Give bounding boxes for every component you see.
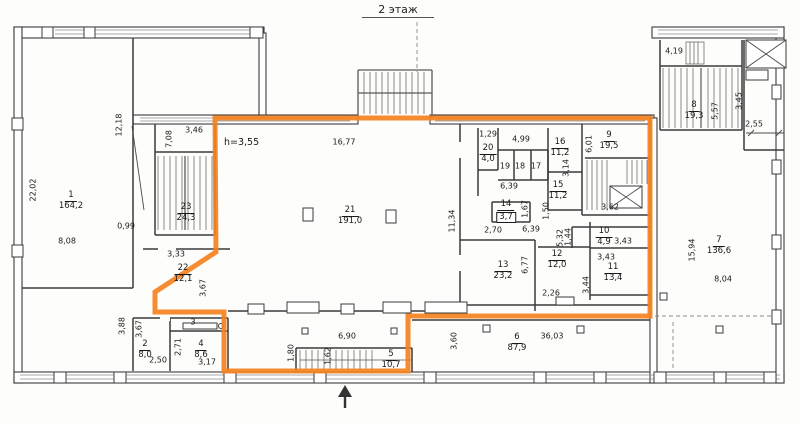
floor-plan: 2 этаж h=3,55 1164,22324,32212,128,048,6…	[0, 0, 800, 423]
room-label: 7136,6	[707, 236, 731, 256]
dimension-label: 6,01	[585, 135, 594, 153]
dimension-label: 3,62	[601, 203, 619, 212]
room-label: 687,9	[508, 333, 527, 353]
dimension-label: 3,43	[614, 237, 632, 246]
dimension-label: 6,90	[338, 332, 356, 341]
dimension-label: 2,71	[174, 338, 183, 356]
dimension-label: 1,67	[521, 200, 530, 218]
dimension-label: 6,39	[500, 182, 518, 191]
room-label: 919,5	[600, 131, 619, 151]
dimension-label: 12,18	[115, 114, 124, 137]
room-label: 204,0	[480, 144, 497, 164]
dimension-label: 2,50	[149, 356, 167, 365]
dimension-label: 7,08	[165, 130, 174, 148]
room-label: 819,3	[685, 101, 704, 121]
dimension-label: 1,80	[287, 344, 296, 362]
room-label: 1511,2	[549, 181, 568, 201]
dimension-label: 6,77	[521, 256, 530, 274]
dimension-label: 17	[531, 162, 541, 171]
dimension-label: 4,99	[512, 135, 530, 144]
plan-labels: 1164,22324,32212,128,048,6510,7687,92119…	[0, 0, 800, 423]
dimension-label: 3,45	[735, 92, 744, 110]
dimension-label: 3,14	[562, 159, 571, 177]
dimension-label: 16,77	[333, 138, 356, 147]
dimension-label: 3,33	[167, 250, 185, 259]
dimension-label: 2,70	[484, 226, 502, 235]
room-label: 2324,3	[177, 203, 196, 223]
dimension-label: 1,50	[542, 202, 551, 220]
room-label: 2212,1	[174, 264, 193, 284]
dimension-label: 3,43	[597, 253, 615, 262]
dimension-label: 3,44	[582, 276, 591, 294]
dimension-label: 5,57	[711, 102, 720, 120]
dimension-label: 1,29	[479, 130, 497, 139]
dimension-label: 3	[190, 318, 195, 327]
dimension-label: 4,19	[665, 47, 683, 56]
dimension-label: 11,34	[448, 210, 457, 233]
dimension-label: 8,08	[58, 237, 76, 246]
room-label: 1323,2	[494, 261, 513, 281]
dimension-label: 18	[515, 162, 525, 171]
room-label: 143,7	[496, 200, 516, 223]
dimension-label: 0,99	[117, 222, 135, 231]
dimension-label: 3,60	[450, 332, 459, 350]
dimension-label: 19	[500, 162, 510, 171]
dimension-label: 3,88	[118, 317, 127, 335]
dimension-label: 2,55	[745, 120, 763, 129]
dimension-label: 3,46	[185, 126, 203, 135]
room-label: 1113,4	[604, 263, 623, 283]
dimension-label: 8,04	[714, 275, 732, 284]
dimension-label: 3,67	[199, 279, 208, 297]
dimension-label: 3,67	[135, 320, 144, 338]
dimension-label: 36,03	[541, 332, 564, 341]
dimension-label: 2,26	[542, 289, 560, 298]
dimension-label: 3,17	[198, 358, 216, 367]
room-label: 1611,2	[551, 138, 570, 158]
dimension-label: 6,39	[522, 225, 540, 234]
room-label: 21191,0	[338, 206, 362, 226]
dimension-label: 1,44	[564, 228, 573, 246]
room-label: 510,7	[382, 350, 401, 370]
room-label: 104,9	[596, 227, 613, 247]
room-label: 1164,2	[59, 191, 83, 211]
room-label: 1212,0	[548, 250, 567, 270]
dimension-label: 1,62	[324, 347, 333, 365]
dimension-label: 22,02	[29, 179, 38, 202]
dimension-label: 15,94	[688, 239, 697, 262]
